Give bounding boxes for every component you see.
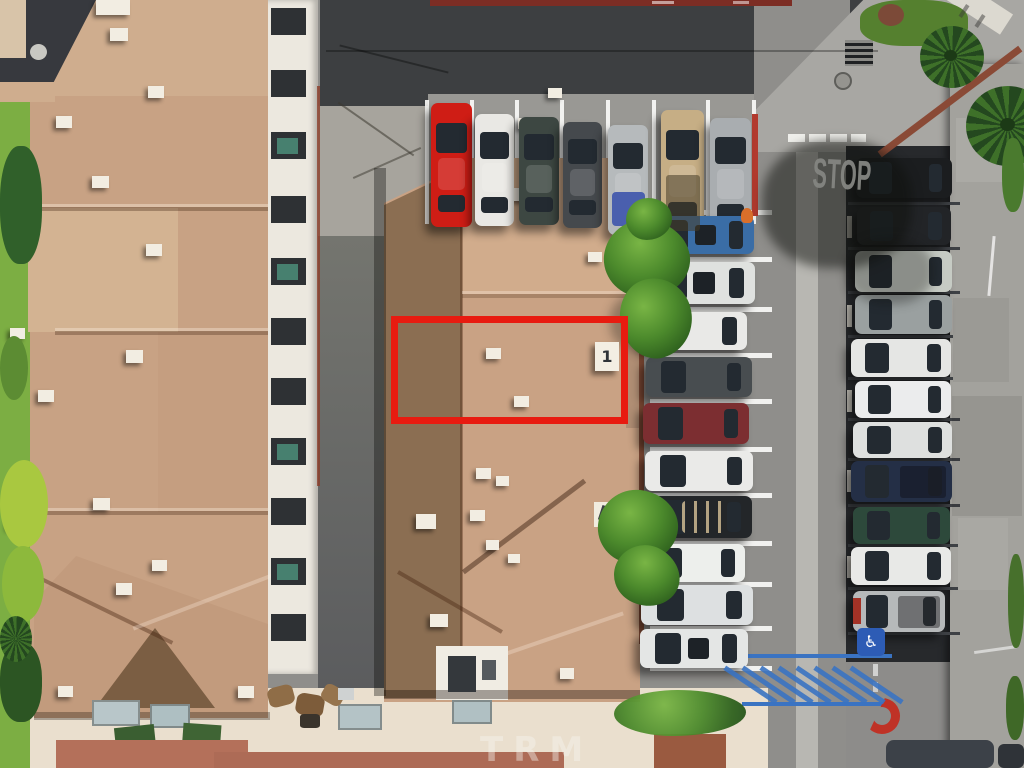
facade-window [271, 614, 306, 641]
palm-tree [0, 616, 32, 662]
car-maroon [643, 403, 749, 444]
car-black-jeep-glass [727, 502, 742, 532]
car-white-glass [868, 385, 891, 415]
car-black-glass [929, 164, 942, 193]
facade-window [271, 498, 306, 525]
roof-section [55, 96, 268, 208]
car-white-glass [481, 197, 508, 213]
car-dark-gray [563, 122, 602, 228]
car-white-glass [928, 427, 942, 453]
car-white-glass [721, 549, 735, 576]
car-silver-truck-glass [866, 595, 888, 628]
car-white-glass [927, 344, 941, 371]
wheel-stop [847, 305, 852, 327]
eave-shadow [462, 294, 640, 298]
eave-shadow [55, 331, 268, 335]
car-white-suv-glass [722, 634, 737, 662]
car-red [431, 103, 472, 227]
car-silver-glass [715, 137, 746, 165]
roof-vent [110, 28, 128, 41]
facade-glass [277, 564, 298, 580]
car-dark-green-glass [526, 165, 552, 193]
ridge-line-v [460, 160, 463, 698]
building-shadow [374, 168, 386, 696]
ac-unit [338, 688, 354, 700]
roof-vent [56, 116, 72, 128]
car-green-glass [867, 511, 890, 541]
curb-mark [733, 1, 749, 4]
roof-vent [146, 244, 162, 256]
spa-cover [654, 734, 726, 768]
car-silver-glass [726, 591, 742, 620]
roof-vent [38, 390, 54, 402]
car-blue-truck-glass [865, 465, 889, 498]
roof-vent [148, 86, 164, 98]
facade-window [271, 318, 306, 345]
parked-car-partial [886, 740, 994, 768]
facade-window [271, 70, 306, 97]
red-curb [752, 114, 758, 216]
skylight [92, 700, 140, 726]
roof-vent [508, 554, 520, 563]
car-white-suv-glass [729, 268, 744, 298]
car-white [645, 451, 753, 491]
truck-bed [900, 466, 946, 498]
eave-shadow [384, 690, 640, 699]
car-white-glass [727, 457, 742, 486]
car-tan-truck-glass [666, 130, 699, 160]
roof-vent [470, 510, 485, 521]
roof-vent [496, 476, 509, 486]
roof-vent [548, 88, 562, 98]
asphalt-seam [326, 50, 878, 52]
car-black-jeep-glass [682, 501, 727, 533]
facade-glass [277, 264, 298, 280]
roof-vent [476, 468, 491, 479]
top-left-wall [0, 0, 26, 58]
stall-divider [848, 418, 960, 421]
roof-vent [588, 252, 602, 262]
stall-divider [848, 377, 960, 380]
roof-patch [958, 518, 1008, 590]
car-dark-suv [646, 357, 752, 397]
car-maroon-glass [724, 409, 739, 439]
car-dark-suv-glass [727, 363, 742, 392]
roof-vent [430, 614, 448, 627]
handicap-parking-symbol: ♿ [857, 628, 885, 656]
car-white [851, 547, 951, 585]
car-white-glass [867, 426, 891, 455]
skylight [338, 704, 382, 730]
palm-center [944, 50, 957, 61]
car-dark-suv-glass [661, 361, 686, 393]
car-dark-green-glass [525, 197, 552, 212]
parking-line [425, 100, 429, 224]
pavement-mark [873, 664, 878, 676]
patio-item [482, 660, 496, 680]
car-dark-green [519, 117, 559, 225]
bush-red [878, 4, 904, 26]
center-building-shaded-slope [384, 168, 462, 698]
car-silver-glass [717, 169, 743, 199]
traffic-cone [741, 208, 753, 223]
facade-window [271, 8, 306, 35]
tree-shadow [846, 238, 934, 304]
highlight-rectangle [391, 316, 628, 424]
car-white-glass [480, 132, 510, 159]
roof-vent [416, 514, 436, 529]
facade-glass [277, 444, 298, 460]
car-green [853, 507, 950, 544]
car-red-glass [436, 123, 467, 153]
roof-vent [116, 583, 132, 595]
tree-dark [0, 146, 42, 264]
car-white-suv-glass [693, 272, 715, 294]
roof-vent [152, 560, 167, 571]
wheel-stop [847, 390, 852, 412]
car-dark-green-glass [524, 134, 554, 160]
roof-section-light [28, 208, 178, 332]
roof-vent [58, 686, 73, 697]
car-red-glass [438, 195, 466, 212]
rust-pipe [317, 86, 320, 486]
handicap-zone-border [742, 702, 892, 706]
bush [0, 336, 28, 400]
car-green-glass [927, 512, 941, 539]
car-maroon-glass [658, 407, 683, 440]
car-white-glass [722, 317, 737, 344]
stall-divider [848, 335, 960, 338]
stop-bar [788, 134, 805, 142]
skylight [452, 700, 492, 724]
roof-vent [560, 668, 574, 679]
bush-bright [0, 460, 48, 548]
eave-shadow [28, 207, 268, 211]
truck-bed [898, 596, 940, 628]
roof-vent [92, 176, 109, 188]
photo-watermark: TRM [480, 730, 593, 768]
patio-table [300, 714, 320, 728]
car-white-glass [482, 163, 507, 192]
car-silver-covered-glass [613, 143, 643, 169]
roof-vent [238, 686, 254, 698]
car-white-glass [927, 552, 941, 579]
roof-section [158, 332, 268, 512]
manhole-cover [834, 72, 852, 90]
bush-bright [2, 546, 44, 622]
roof-vent [126, 350, 143, 363]
car-white-glass [660, 455, 686, 487]
edge-bush [1006, 676, 1024, 740]
parked-car-partial [998, 744, 1024, 768]
car-dark-gray-glass [570, 169, 595, 197]
car-red-glass [438, 158, 464, 190]
eave-shadow [28, 511, 268, 515]
car-white [853, 422, 952, 458]
car-white [855, 381, 951, 418]
truck-nose-red [853, 598, 861, 624]
car-white-suv-glass [655, 633, 681, 664]
edge-bush [1002, 138, 1024, 212]
car-dark-gray-glass [569, 200, 596, 215]
patio-door [448, 656, 476, 692]
car-dark-gray-glass [568, 139, 598, 164]
car-gray-van-glass [929, 300, 943, 328]
roof-section [178, 208, 268, 332]
curb-mark [652, 1, 674, 4]
car-white-suv [640, 629, 748, 668]
car-white [851, 339, 951, 377]
roof-stain [952, 396, 1022, 516]
car-blue-suv-glass [729, 221, 744, 248]
stall-divider [848, 587, 960, 590]
car-white-glass [928, 386, 941, 413]
satellite-dish [30, 44, 47, 60]
facade-window [271, 378, 306, 405]
roof-patch [953, 298, 1009, 382]
facade-window [271, 196, 306, 223]
drain-grate [845, 40, 873, 66]
palm-center [1000, 118, 1015, 131]
roof-vent [486, 540, 499, 550]
aerial-photo: 1 ♿ STOP TRM [0, 0, 1024, 768]
edge-bush [1008, 554, 1024, 648]
car-white-suv-glass [688, 638, 710, 658]
roof-vent [93, 498, 110, 510]
facade-glass [277, 138, 298, 154]
car-white-glass [865, 343, 889, 373]
car-white [475, 114, 514, 226]
car-black-glass [928, 212, 941, 239]
car-white-glass [865, 551, 889, 581]
roof-vent [96, 0, 130, 15]
